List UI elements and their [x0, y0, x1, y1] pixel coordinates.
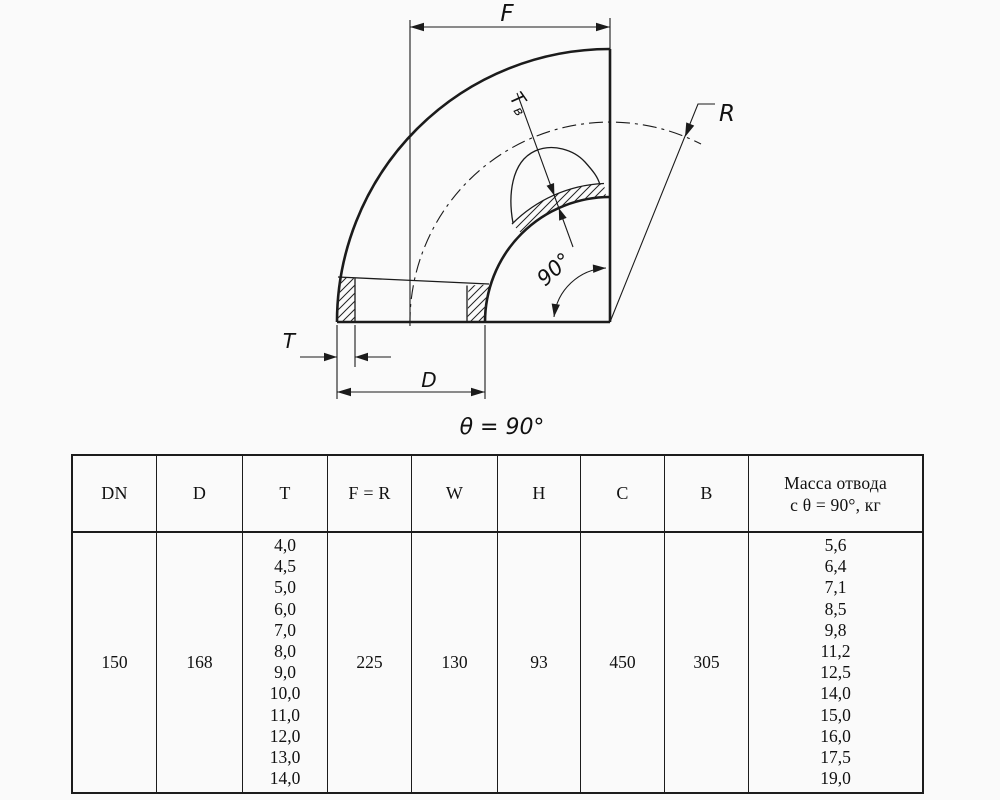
cell-line: 4,5 — [274, 556, 296, 577]
cell-line: 11,0 — [270, 705, 300, 726]
cell-line: 14,0 — [820, 683, 851, 704]
cell-line: Масса отвода — [784, 472, 887, 494]
table-column-c: C 450 — [581, 456, 665, 792]
cell-line: 8,0 — [274, 641, 296, 662]
cell-line: 10,0 — [270, 683, 301, 704]
cell-line: с θ = 90°, кг — [790, 494, 881, 516]
cell-c: 450 — [581, 533, 664, 792]
t-dim-label: T — [283, 329, 297, 353]
cell-d: 168 — [157, 533, 242, 792]
pipe-end-line — [338, 277, 489, 284]
r-radial-line — [610, 104, 715, 322]
column-header-w: W — [412, 456, 497, 533]
d-arrow-left-icon — [337, 388, 351, 397]
elbow-outer-arc — [337, 49, 610, 322]
cell-line: 16,0 — [820, 726, 851, 747]
cell-mass-values: 5,66,47,18,59,811,212,514,015,016,017,51… — [749, 533, 922, 792]
table-column-h: H 93 — [498, 456, 581, 792]
tv-label: Тв — [502, 88, 534, 119]
r-arrow-icon — [681, 122, 694, 138]
cell-line: 7,1 — [825, 577, 847, 598]
cell-line: 13,0 — [270, 747, 301, 768]
r-dim-label: R — [719, 101, 735, 127]
section-hatching — [338, 184, 606, 322]
cell-line: 14,0 — [270, 768, 301, 789]
cell-w: 130 — [412, 533, 497, 792]
column-header-c: C — [581, 456, 664, 533]
cell-dn: 150 — [73, 533, 156, 792]
bend-centerline-arc — [410, 122, 701, 326]
table-column-mass: Масса отводас θ = 90°, кг 5,66,47,18,59,… — [749, 456, 922, 792]
cell-line: 5,6 — [825, 535, 847, 556]
drawing-caption: θ = 90° — [460, 415, 545, 440]
elbow-technical-drawing: F R 90° Тв T D θ = 90° — [0, 0, 1000, 450]
cell-line: 8,5 — [825, 599, 847, 620]
table-column-d: D 168 — [157, 456, 243, 792]
f-arrow-left-icon — [410, 23, 424, 32]
cell-line: 17,5 — [820, 747, 851, 768]
cell-line: 9,8 — [825, 620, 847, 641]
f-dim-label: F — [500, 1, 514, 27]
d-dim-label: D — [421, 368, 436, 392]
cell-t-values: 4,04,55,06,07,08,09,010,011,012,013,014,… — [243, 533, 327, 792]
r-leader — [610, 104, 715, 322]
cell-line: 12,0 — [270, 726, 301, 747]
table-column-t: T 4,04,55,06,07,08,09,010,011,012,013,01… — [243, 456, 328, 792]
column-header-mass: Масса отводас θ = 90°, кг — [749, 456, 922, 533]
angle-arrow-bottom-icon — [550, 304, 560, 318]
table-column-w: W 130 — [412, 456, 498, 792]
f-arrow-right-icon — [596, 23, 610, 32]
column-header-t: T — [243, 456, 327, 533]
cell-fr: 225 — [328, 533, 411, 792]
d-arrow-right-icon — [471, 388, 485, 397]
cell-line: 6,4 — [825, 556, 847, 577]
column-header-b: B — [665, 456, 748, 533]
d-dimension — [337, 325, 485, 399]
column-header-d: D — [157, 456, 242, 533]
cell-line: 19,0 — [820, 768, 851, 789]
cell-line: 6,0 — [274, 599, 296, 620]
t-arrow-left-icon — [324, 353, 337, 361]
cell-line: 12,5 — [820, 662, 851, 683]
cell-line: 11,2 — [821, 641, 851, 662]
table-column-b: B 305 — [665, 456, 749, 792]
t-dimension — [300, 325, 391, 399]
cell-line: 5,0 — [274, 577, 296, 598]
column-header-dn: DN — [73, 456, 156, 533]
column-header-fr: F = R — [328, 456, 411, 533]
left-wall-hatch — [338, 278, 355, 322]
cell-line: 15,0 — [820, 705, 851, 726]
cell-b: 305 — [665, 533, 748, 792]
cell-line: 4,0 — [274, 535, 296, 556]
column-header-h: H — [498, 456, 580, 533]
table-column-dn: DN 150 — [73, 456, 157, 792]
angle-arrow-top-icon — [593, 264, 606, 273]
t-arrow-right-icon — [355, 353, 368, 361]
cell-line: 7,0 — [274, 620, 296, 641]
cell-h: 93 — [498, 533, 580, 792]
elbow-spec-table: DN 150 D 168 T 4,04,55,06,07,08,09,010,0… — [71, 454, 924, 794]
table-column-fr: F = R 225 — [328, 456, 412, 792]
cell-line: 9,0 — [274, 662, 296, 683]
